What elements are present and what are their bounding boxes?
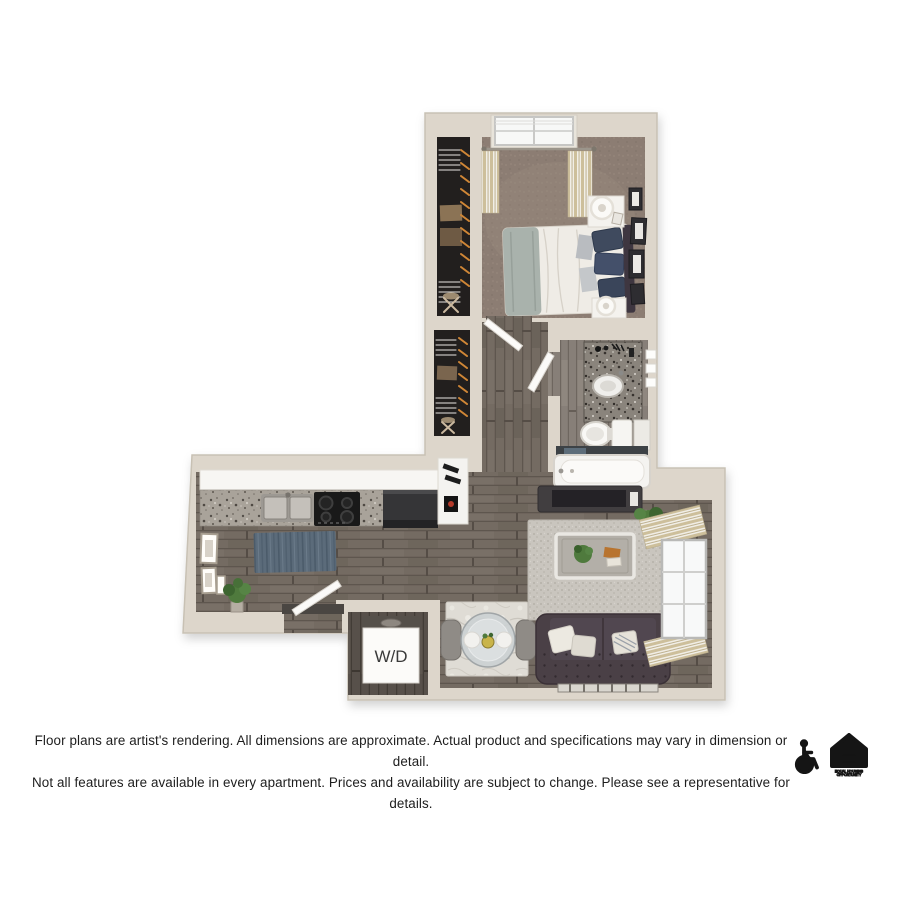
nightstand-top	[588, 196, 624, 227]
nightstand-bottom	[592, 297, 626, 318]
washer-dryer-closet: W/D	[362, 616, 420, 683]
eho-text-line-2: OPPORTUNITY	[837, 773, 862, 777]
disclaimer-line-2: Not all features are available in every …	[30, 773, 792, 815]
bedroom-closet-floor	[437, 137, 470, 316]
sofa-pillow	[571, 635, 596, 657]
dining-chair-right	[516, 620, 536, 660]
bath-shelf	[634, 420, 650, 450]
kitchen-rug	[253, 531, 336, 573]
wheelchair-accessible-icon	[791, 739, 824, 779]
equal-housing-opportunity-icon: EQUAL HOUSING OPPORTUNITY	[830, 733, 868, 782]
floor-mat	[558, 684, 658, 692]
cooktop	[314, 492, 360, 526]
sofa-pillow	[612, 630, 639, 654]
dining-chair-left	[441, 620, 461, 660]
coffee-table	[556, 534, 634, 578]
wd-label: W/D	[374, 647, 407, 666]
kitchen-sink	[261, 492, 314, 522]
kitchen-dark-cabinet	[383, 490, 438, 528]
curtain-left	[482, 151, 499, 213]
disclaimer-line-1: Floor plans are artist's rendering. All …	[30, 731, 792, 773]
page: W/D	[0, 0, 900, 900]
bathtub	[554, 446, 650, 488]
dining-area	[441, 602, 536, 676]
bar-cart	[438, 458, 468, 524]
disclaimer: Floor plans are artist's rendering. All …	[30, 731, 792, 815]
kitchen-counter	[200, 470, 438, 528]
dining-table	[461, 613, 515, 667]
vanity	[584, 342, 642, 422]
vanity-lights	[646, 350, 656, 387]
tv-console	[538, 486, 642, 512]
toilet	[581, 420, 632, 448]
